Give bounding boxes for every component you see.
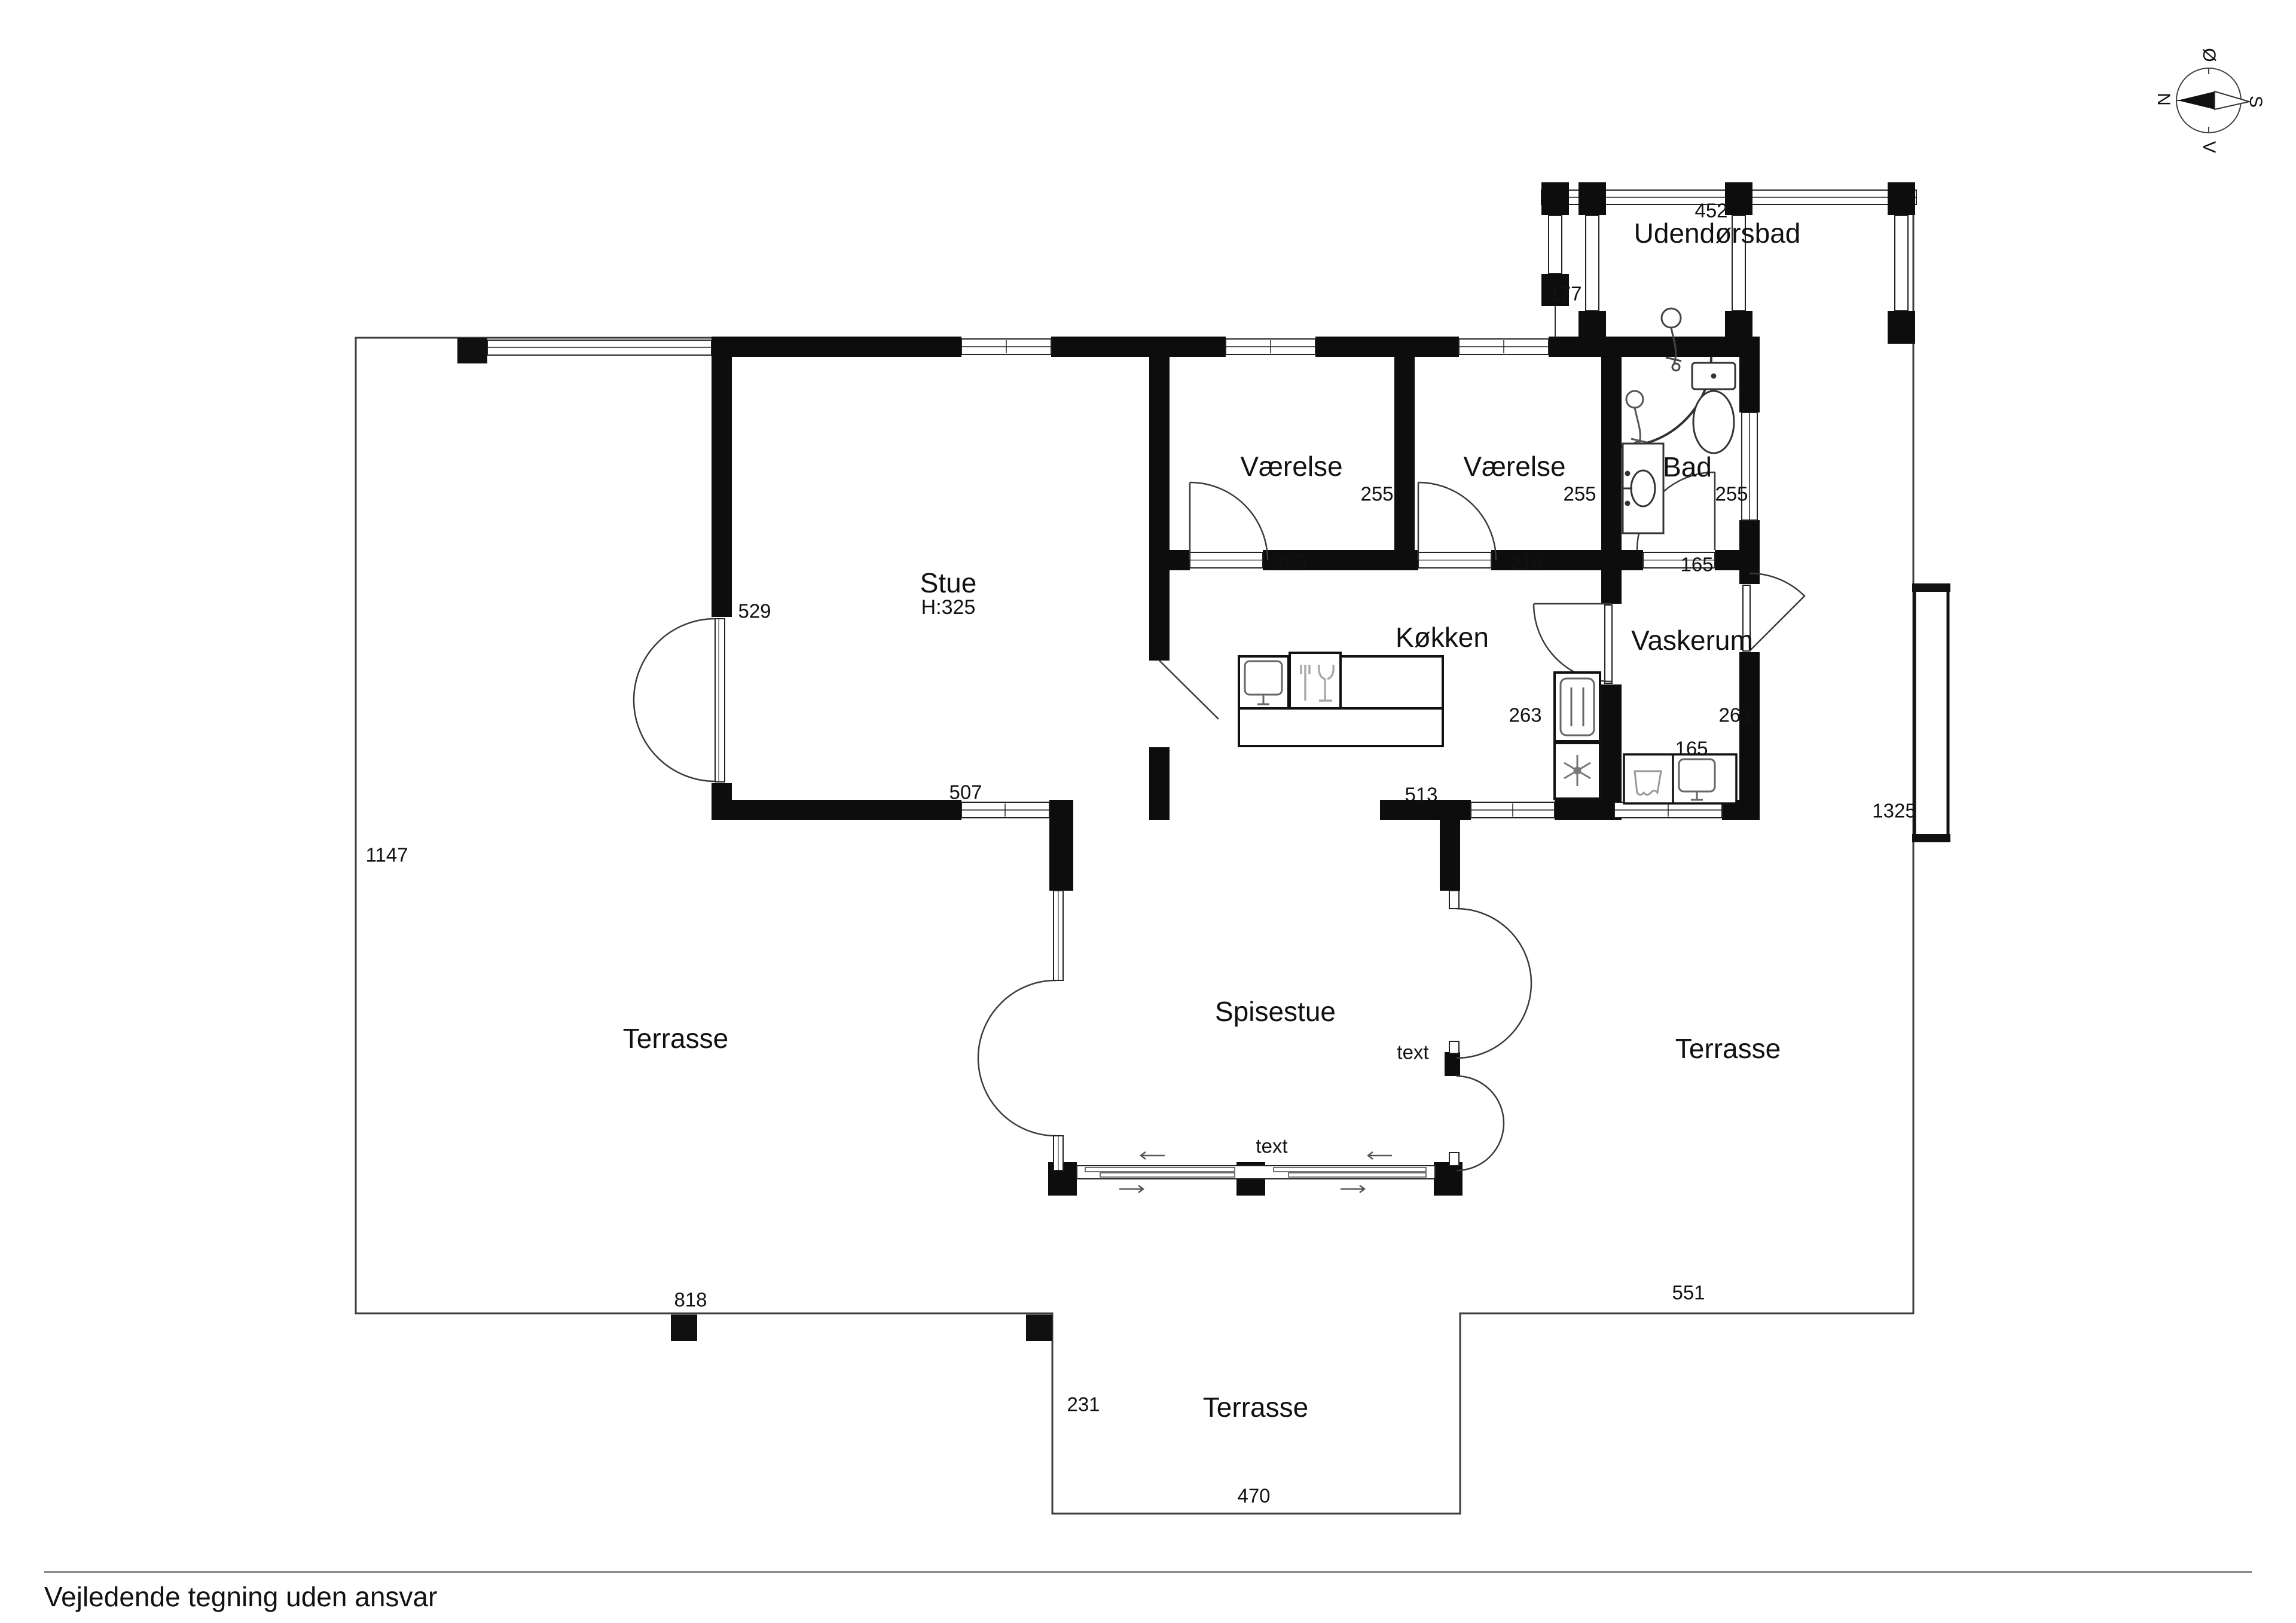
walls xyxy=(712,337,1760,1196)
compass-west-label: V xyxy=(2200,141,2218,153)
terrace-boundary xyxy=(356,215,1913,1514)
room-label-stue: Stue xyxy=(920,569,977,597)
dim-koekken-depth: 263 xyxy=(1509,705,1541,725)
dim-udendoersbad-depth: 177 xyxy=(1549,284,1581,304)
room-label-terrasse-east: Terrasse xyxy=(1675,1035,1781,1062)
east-gate xyxy=(1912,583,1950,842)
stue-koekken-door xyxy=(1159,661,1219,719)
dim-vaerelse1-depth: 255 xyxy=(1360,484,1393,504)
compass-east-label: Ø xyxy=(2200,48,2218,62)
room-label-koekken: Køkken xyxy=(1396,623,1489,651)
room-label-terrasse-south: Terrasse xyxy=(1203,1393,1308,1421)
room-label-spisestue: Spisestue xyxy=(1215,998,1336,1025)
dim-notch-width: 470 xyxy=(1237,1486,1270,1506)
spisestue-text-south: text xyxy=(1256,1136,1287,1156)
toilet-icon xyxy=(1692,363,1735,453)
dim-west-side: 1147 xyxy=(366,845,408,865)
stue-french-door xyxy=(634,619,725,782)
room-label-vaskerum: Vaskerum xyxy=(1631,626,1753,654)
dim-vaskerum-width: 165 xyxy=(1675,739,1708,759)
spisestue-west-doors xyxy=(978,980,1056,1136)
floorplan-drawing xyxy=(0,0,2296,1623)
dim-vaerelse1-door: 285 xyxy=(1274,553,1306,573)
room-label-vaerelse-2: Værelse xyxy=(1463,453,1565,480)
dim-vaerelse2-depth: 255 xyxy=(1563,484,1596,504)
dim-passage: 513 xyxy=(1405,785,1437,805)
kitchen-island xyxy=(1239,653,1443,746)
stove-icon xyxy=(1555,743,1600,799)
dim-notch-depth: 231 xyxy=(1067,1395,1100,1414)
spisestue-east-doors xyxy=(1457,909,1531,1170)
doors xyxy=(634,472,1805,1170)
dim-stue-door: 529 xyxy=(738,601,771,621)
dim-bad-depth: 255 xyxy=(1715,484,1748,504)
dim-udendoersbad-width: 452 xyxy=(1694,201,1727,221)
footer-divider xyxy=(44,1571,2252,1573)
footer-disclaimer: Vejledende tegning uden ansvar xyxy=(44,1581,437,1613)
dim-vaerelse2-door: 216 xyxy=(1510,553,1543,573)
dim-south-east: 551 xyxy=(1672,1283,1705,1303)
dim-south-west: 818 xyxy=(674,1290,707,1310)
dim-bad-door: 165 xyxy=(1680,555,1713,574)
dim-vaskerum-depth: 263 xyxy=(1718,705,1751,725)
bad-sink-icon xyxy=(1623,444,1663,533)
dim-east-gate: 1325 xyxy=(1872,801,1916,821)
laundry-counter xyxy=(1624,754,1736,803)
compass-north-label: N xyxy=(2154,93,2172,106)
room-label-udendoersbad: Udendørsbad xyxy=(1634,219,1801,247)
compass-south-label: S xyxy=(2246,96,2264,108)
terrace-posts xyxy=(457,338,1052,1341)
stue-ceiling-height: H:325 xyxy=(921,597,976,618)
room-label-vaerelse-1: Værelse xyxy=(1240,453,1342,480)
spisestue-text-east: text xyxy=(1397,1043,1428,1062)
room-label-terrasse-west: Terrasse xyxy=(623,1025,728,1052)
outdoor-bath-structure xyxy=(1541,182,1916,371)
floor-plan-page: Stue H:325 Værelse 255 285 Værelse 255 2… xyxy=(0,0,2296,1623)
vaerelse1-door xyxy=(1190,482,1268,568)
dim-stue-wall: 507 xyxy=(949,783,982,802)
fridge-icon xyxy=(1555,673,1600,741)
vaerelse2-door xyxy=(1418,482,1496,568)
room-label-bad: Bad xyxy=(1663,453,1712,481)
northwest-railing xyxy=(487,340,712,355)
compass-rose xyxy=(2176,68,2249,133)
